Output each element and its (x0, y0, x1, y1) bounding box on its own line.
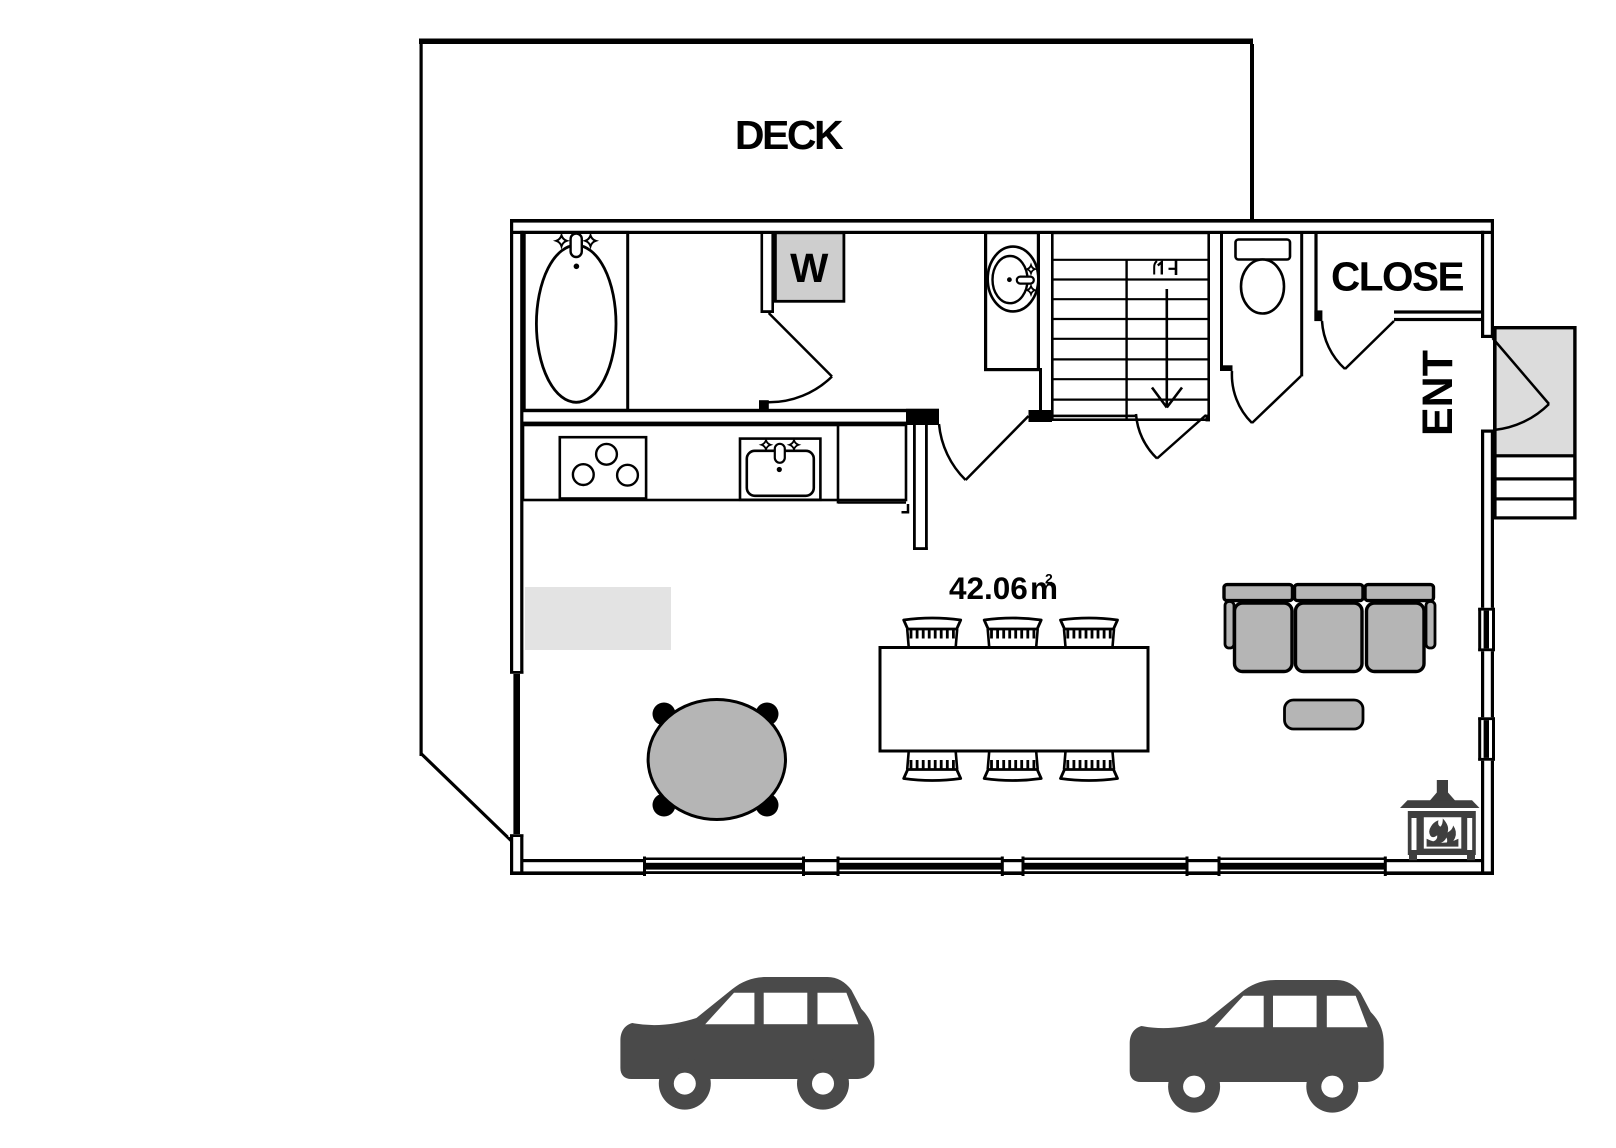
svg-text:CLOSE: CLOSE (1331, 254, 1464, 300)
svg-text:42.06: 42.06 (949, 570, 1028, 606)
svg-text:ENT: ENT (1414, 350, 1462, 436)
svg-text:2: 2 (1045, 571, 1053, 587)
svg-text:DECK: DECK (735, 112, 844, 158)
svg-text:m: m (1030, 570, 1058, 606)
svg-text:W: W (790, 245, 829, 291)
